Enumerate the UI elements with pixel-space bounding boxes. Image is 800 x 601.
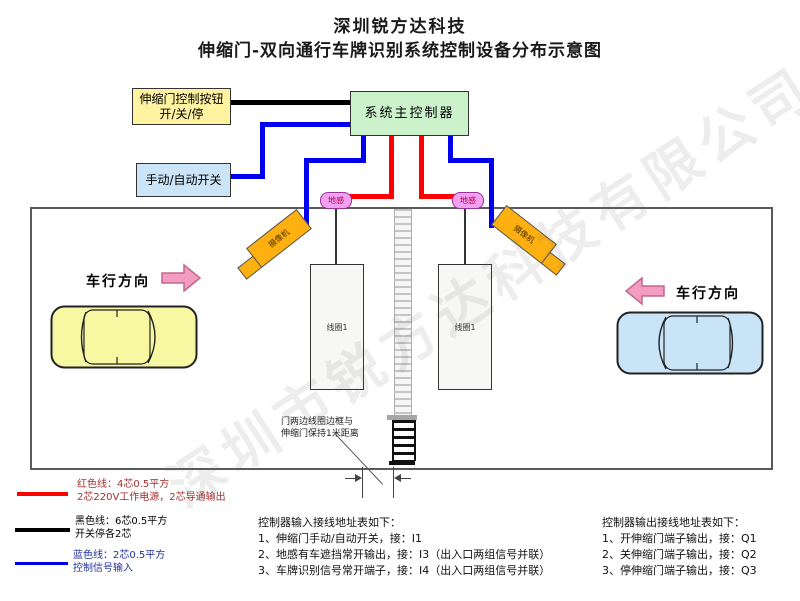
legend-blue-line1: 蓝色线：2芯0.5平方 bbox=[73, 549, 165, 562]
input-table-title: 控制器输入接线地址表如下： bbox=[258, 515, 550, 531]
input-table-item-1: 1、伸缩门手动/自动开关，接：I1 bbox=[258, 531, 550, 547]
induction-coil-right: 线圈1 bbox=[438, 264, 492, 390]
camera-left-label: 摄像机 bbox=[266, 227, 292, 250]
legend-red-line2: 2芯220V工作电源，2芯导通输出 bbox=[77, 491, 226, 504]
dimension-tick-left bbox=[362, 467, 363, 498]
car-yellow bbox=[50, 305, 198, 373]
diagram-title: 伸缩门-双向通行车牌识别系统控制设备分布示意图 bbox=[0, 36, 800, 61]
red-wire-left-sensor-h bbox=[348, 194, 394, 199]
input-table-item-2: 2、地感有车遮挡常开输出，接：I3（出入口两组信号并联） bbox=[258, 547, 550, 563]
dimension-arrowhead-right-icon bbox=[355, 474, 362, 482]
legend-blue-text: 蓝色线：2芯0.5平方 控制信号输入 bbox=[73, 549, 165, 575]
induction-coil-left: 线圈1 bbox=[310, 264, 364, 390]
output-table-title: 控制器输出接线地址表如下： bbox=[602, 515, 757, 531]
blue-wire-left-camera-h bbox=[304, 158, 366, 163]
output-wiring-table: 控制器输出接线地址表如下： 1、开伸缩门端子输出，接：Q1 2、关伸缩门端子输出… bbox=[602, 515, 757, 579]
retractable-gate-base bbox=[389, 461, 415, 465]
output-table-item-2: 2、关伸缩门端子输出，接：Q2 bbox=[602, 547, 757, 563]
left-sensor-drop-line bbox=[335, 206, 337, 264]
blue-wire-switch-to-controller bbox=[260, 122, 350, 127]
gate-note-line1: 门两边线圈边框与 bbox=[281, 416, 359, 428]
legend-red-line1: 红色线：4芯0.5平方 bbox=[77, 478, 226, 491]
diagram-canvas: 深圳锐方达科技 伸缩门-双向通行车牌识别系统控制设备分布示意图 伸缩门控制按钮 … bbox=[0, 0, 800, 601]
main-controller-label: 系统主控制器 bbox=[364, 106, 454, 121]
gate-note-line2: 伸缩门保持1米距离 bbox=[281, 428, 359, 440]
legend-blue-line2: 控制信号输入 bbox=[73, 562, 165, 575]
red-wire-left-sensor-v bbox=[389, 133, 394, 199]
input-wiring-table: 控制器输入接线地址表如下： 1、伸缩门手动/自动开关，接：I1 2、地感有车遮挡… bbox=[258, 515, 550, 579]
blue-wire-switch-v bbox=[260, 122, 265, 179]
legend-black-line-sample bbox=[15, 528, 70, 532]
ground-sensor-left: 地感 bbox=[320, 192, 352, 209]
blue-wire-left-camera-v2 bbox=[304, 158, 309, 229]
coil-left-label: 线圈1 bbox=[326, 322, 347, 333]
gate-button-label-line1: 伸缩门控制按钮 bbox=[139, 92, 223, 107]
output-table-item-1: 1、开伸缩门端子输出，接：Q1 bbox=[602, 531, 757, 547]
camera-right-label: 摄像机 bbox=[511, 223, 537, 246]
left-direction-label: 车行方向 bbox=[86, 271, 150, 291]
blue-wire-right-camera-v2 bbox=[489, 158, 494, 228]
manual-auto-label: 手动/自动开关 bbox=[145, 173, 221, 188]
legend-black-text: 黑色线：6芯0.5平方 开关停各2芯 bbox=[75, 515, 167, 541]
right-direction-arrow-icon bbox=[624, 276, 666, 310]
input-table-item-3: 3、车牌识别信号常开端子，接：I4（出入口两组信号并联） bbox=[258, 563, 550, 579]
red-wire-right-sensor-v bbox=[419, 133, 424, 199]
ground-sensor-right-label: 地感 bbox=[460, 195, 476, 206]
black-wire-button-to-controller bbox=[229, 100, 350, 105]
legend-blue-line-sample bbox=[15, 562, 68, 565]
company-title: 深圳锐方达科技 bbox=[0, 12, 800, 37]
gate-control-button-box: 伸缩门控制按钮 开/关/停 bbox=[132, 88, 231, 125]
retractable-gate-track bbox=[394, 209, 412, 415]
blue-wire-right-camera-h bbox=[448, 158, 494, 163]
legend-black-line1: 黑色线：6芯0.5平方 bbox=[75, 515, 167, 528]
left-direction-arrow-icon bbox=[160, 263, 202, 297]
retractable-gate-body bbox=[392, 420, 416, 461]
dimension-tick-right bbox=[393, 467, 394, 498]
manual-auto-switch-box: 手动/自动开关 bbox=[136, 163, 231, 197]
dimension-arrowhead-left-icon bbox=[394, 474, 401, 482]
car-blue bbox=[616, 311, 764, 379]
gate-distance-note: 门两边线圈边框与 伸缩门保持1米距离 bbox=[281, 416, 359, 440]
gate-button-label-line2: 开/关/停 bbox=[159, 107, 203, 122]
legend-black-line2: 开关停各2芯 bbox=[75, 528, 167, 541]
coil-right-label: 线圈1 bbox=[454, 322, 475, 333]
ground-sensor-left-label: 地感 bbox=[328, 195, 344, 206]
ground-sensor-right: 地感 bbox=[452, 192, 484, 209]
main-controller-box: 系统主控制器 bbox=[350, 91, 469, 136]
legend-red-text: 红色线：4芯0.5平方 2芯220V工作电源，2芯导通输出 bbox=[77, 478, 226, 504]
right-direction-label: 车行方向 bbox=[676, 283, 740, 303]
legend-red-line-sample bbox=[17, 492, 68, 496]
right-sensor-drop-line bbox=[464, 206, 466, 264]
output-table-item-3: 3、停伸缩门端子输出，接：Q3 bbox=[602, 563, 757, 579]
